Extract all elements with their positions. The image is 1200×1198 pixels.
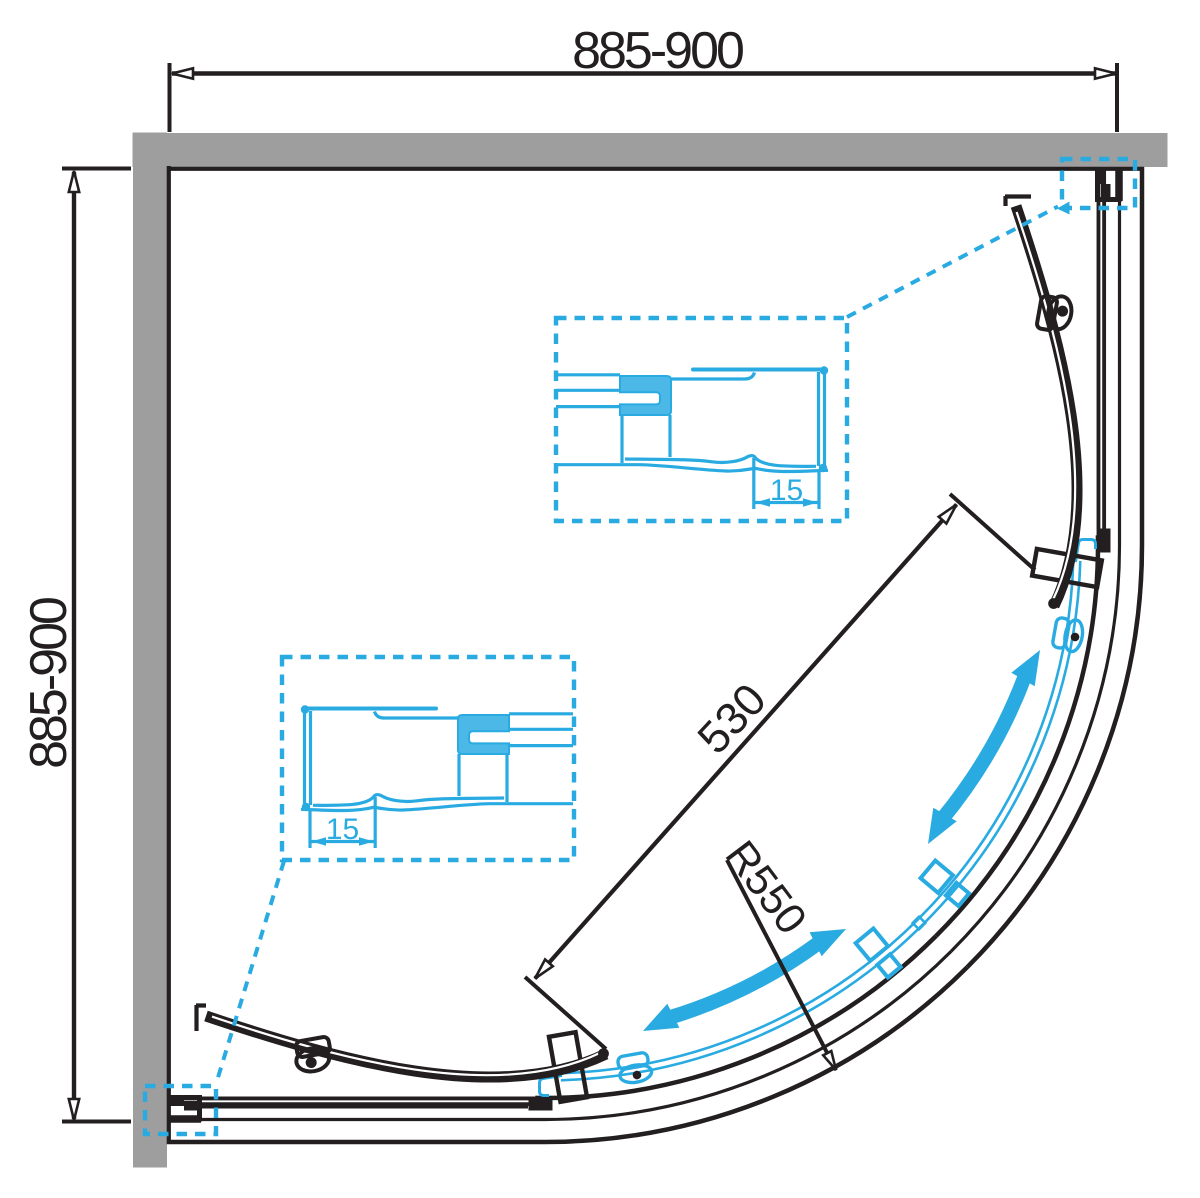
svg-text:885-900: 885-900 <box>572 22 743 80</box>
svg-text:15: 15 <box>770 474 803 507</box>
svg-text:15: 15 <box>326 813 359 846</box>
svg-text:885-900: 885-900 <box>20 598 78 769</box>
